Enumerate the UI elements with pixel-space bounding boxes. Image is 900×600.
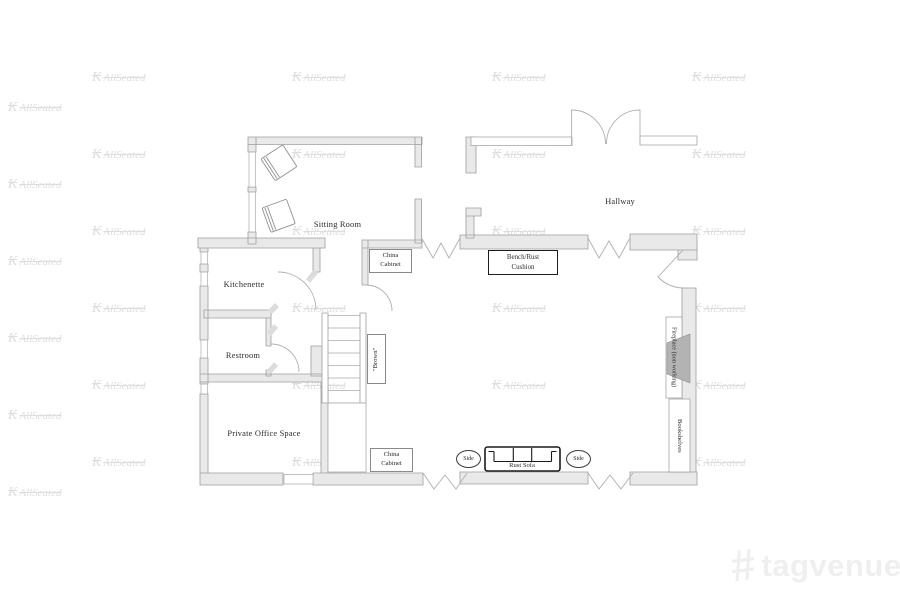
tagvenue-wordmark: tagvenue xyxy=(761,548,900,584)
brown-label: "Brown" xyxy=(367,334,386,384)
label-hallway: Hallway xyxy=(590,197,650,206)
side-table-left: Side xyxy=(456,450,481,468)
understair-closet xyxy=(328,403,366,472)
label-restroom: Restroom xyxy=(209,351,277,360)
label-private-office: Private Office Space xyxy=(209,429,319,438)
china-cabinet-top-label: China Cabinet xyxy=(369,249,412,273)
floor-plan-canvas: KAllSeatedKAllSeatedKAllSeatedKAllSeated… xyxy=(0,0,900,600)
label-sitting-room: Sitting Room xyxy=(305,220,370,229)
hallway-walls xyxy=(471,136,697,146)
stair-treads xyxy=(328,316,360,404)
side-table-right: Side xyxy=(566,450,591,468)
fireplace-label: Fireplace (non working) xyxy=(666,317,682,398)
floor-plan-drawing xyxy=(0,0,900,600)
bench-rust-cushion-label: Bench/Rust Cushion xyxy=(488,250,558,275)
staircase xyxy=(322,313,366,403)
china-cabinet-bottom-label: China Cabinet xyxy=(370,448,413,472)
rust-sofa-label: Rust Sofa xyxy=(492,462,552,469)
armchair-2 xyxy=(262,199,295,232)
tagvenue-logo: # tagvenue xyxy=(731,544,900,588)
armchair-1 xyxy=(261,145,297,181)
label-kitchenette: Kitchenette xyxy=(210,280,278,289)
tagvenue-hash-icon: # xyxy=(728,543,758,590)
bookshelves-label: Bookshelves xyxy=(669,399,690,472)
